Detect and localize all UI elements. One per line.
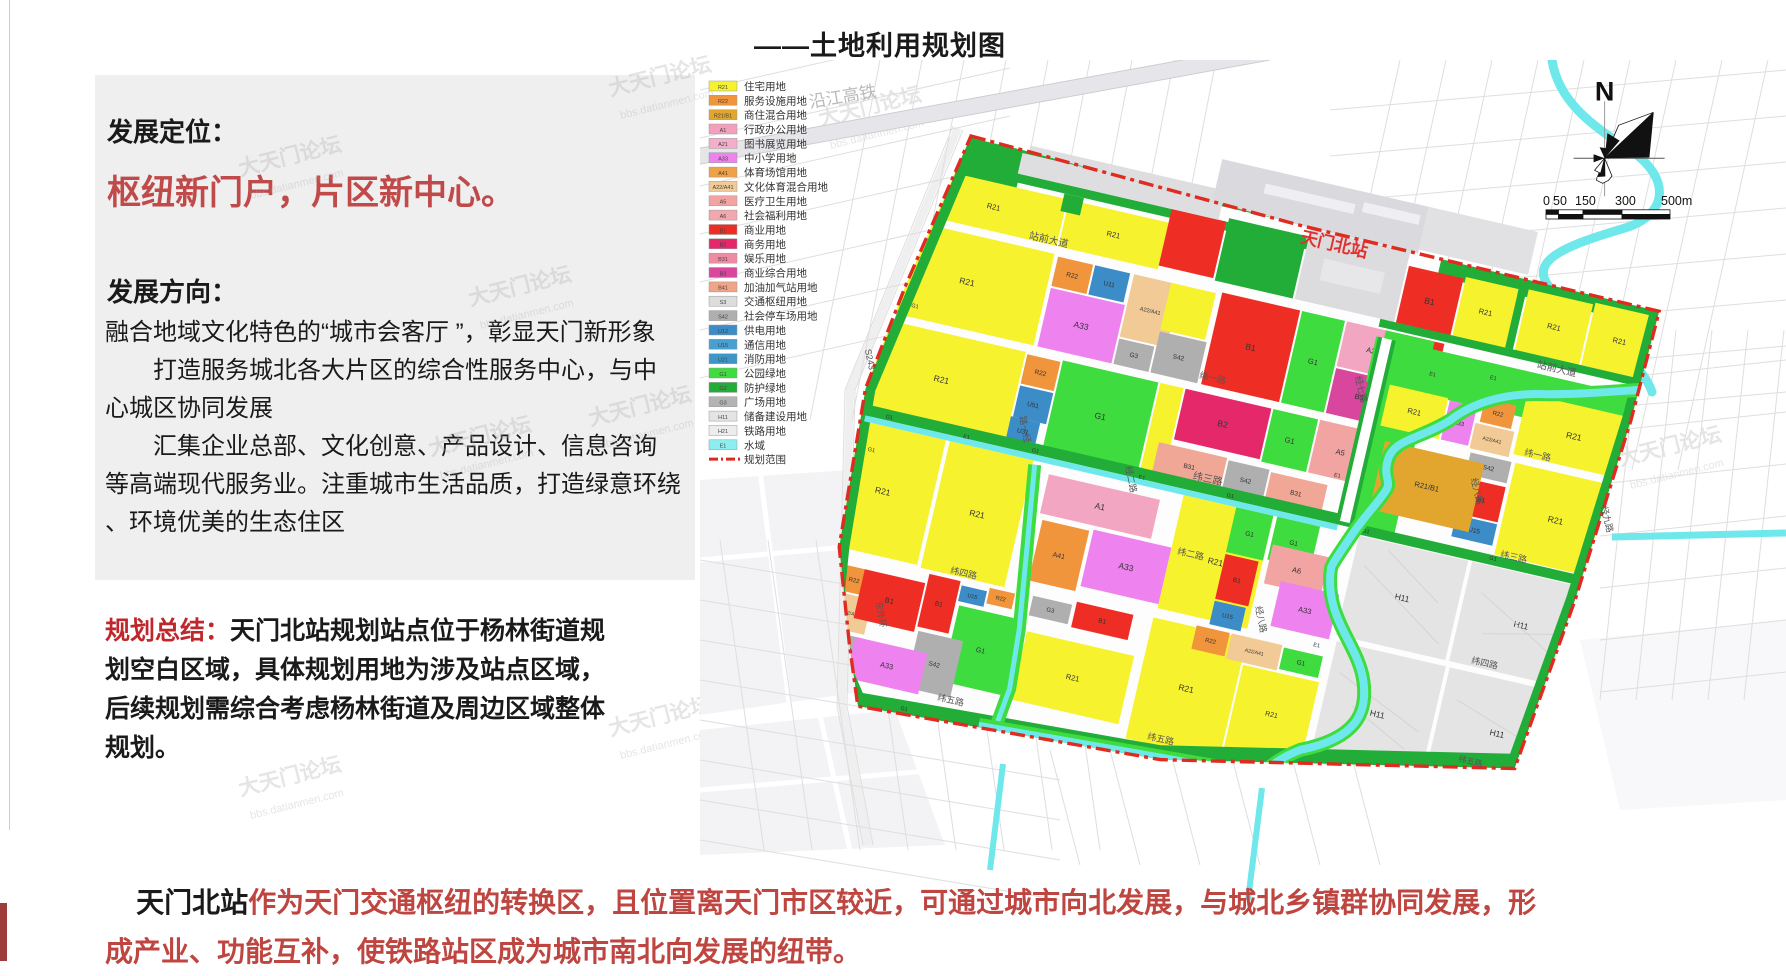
svg-text:规划范围: 规划范围 — [744, 453, 786, 466]
svg-text:社会福利用地: 社会福利用地 — [744, 209, 807, 222]
svg-text:A6: A6 — [720, 214, 727, 220]
svg-text:S3: S3 — [720, 300, 727, 306]
svg-text:防护绿地: 防护绿地 — [744, 381, 786, 394]
svg-text:A21: A21 — [718, 142, 728, 148]
svg-text:U12: U12 — [718, 329, 728, 335]
svg-text:中小学用地: 中小学用地 — [744, 152, 797, 165]
svg-text:行政办公用地: 行政办公用地 — [744, 123, 807, 136]
svg-text:加油加气站用地: 加油加气站用地 — [744, 281, 818, 294]
svg-text:B41: B41 — [718, 286, 728, 292]
svg-text:铁路用地: 铁路用地 — [744, 424, 786, 437]
svg-text:商住混合用地: 商住混合用地 — [744, 109, 807, 122]
svg-text:商务用地: 商务用地 — [744, 238, 786, 251]
svg-text:通信用地: 通信用地 — [744, 338, 786, 351]
svg-text:0: 0 — [1543, 194, 1550, 208]
svg-text:公园绿地: 公园绿地 — [744, 367, 786, 380]
svg-text:B31: B31 — [718, 257, 728, 263]
svg-text:N: N — [1595, 76, 1615, 106]
svg-text:医疗卫生用地: 医疗卫生用地 — [744, 195, 807, 208]
svg-text:R21: R21 — [718, 85, 728, 91]
svg-text:U21: U21 — [718, 358, 728, 364]
svg-text:E1: E1 — [720, 444, 727, 450]
svg-text:广场用地: 广场用地 — [744, 396, 786, 409]
svg-text:经九路: 经九路 — [1599, 505, 1616, 534]
svg-text:G1: G1 — [719, 372, 726, 378]
svg-text:H11: H11 — [718, 415, 728, 421]
svg-text:B3: B3 — [720, 271, 727, 277]
svg-text:娱乐用地: 娱乐用地 — [744, 252, 786, 265]
svg-text:沿江高铁: 沿江高铁 — [808, 82, 878, 112]
svg-text:体育场馆用地: 体育场馆用地 — [744, 166, 807, 179]
svg-text:300: 300 — [1615, 194, 1636, 208]
svg-text:500m: 500m — [1661, 194, 1692, 208]
svg-text:50: 50 — [1553, 194, 1567, 208]
svg-text:A5: A5 — [720, 200, 727, 206]
svg-text:A33: A33 — [718, 157, 728, 163]
svg-text:A41: A41 — [718, 171, 728, 177]
svg-text:S42: S42 — [718, 314, 728, 320]
svg-text:B1: B1 — [720, 228, 727, 234]
svg-text:A22/A41: A22/A41 — [712, 185, 733, 191]
svg-text:U15: U15 — [718, 343, 728, 349]
svg-text:交通枢纽用地: 交通枢纽用地 — [744, 295, 807, 308]
svg-text:图书展览用地: 图书展览用地 — [744, 137, 807, 150]
svg-text:住宅用地: 住宅用地 — [744, 80, 786, 93]
svg-text:G3: G3 — [719, 401, 726, 407]
svg-text:B2: B2 — [720, 243, 727, 249]
svg-text:社会停车场用地: 社会停车场用地 — [744, 310, 818, 323]
svg-text:服务设施用地: 服务设施用地 — [744, 94, 807, 107]
svg-text:G2: G2 — [719, 386, 726, 392]
svg-text:商业综合用地: 商业综合用地 — [744, 267, 807, 280]
svg-text:文化体育混合用地: 文化体育混合用地 — [744, 180, 828, 193]
svg-text:A1: A1 — [720, 128, 727, 134]
svg-text:S243: S243 — [863, 348, 877, 371]
svg-text:R21/B1: R21/B1 — [714, 114, 732, 120]
svg-text:储备建设用地: 储备建设用地 — [744, 410, 807, 423]
svg-text:150: 150 — [1575, 194, 1596, 208]
svg-text:供电用地: 供电用地 — [744, 324, 786, 337]
svg-text:商业用地: 商业用地 — [744, 224, 786, 237]
svg-text:消防用地: 消防用地 — [744, 353, 786, 366]
svg-text:H21: H21 — [718, 429, 728, 435]
svg-text:R22: R22 — [718, 99, 728, 105]
svg-text:水域: 水域 — [744, 439, 765, 452]
